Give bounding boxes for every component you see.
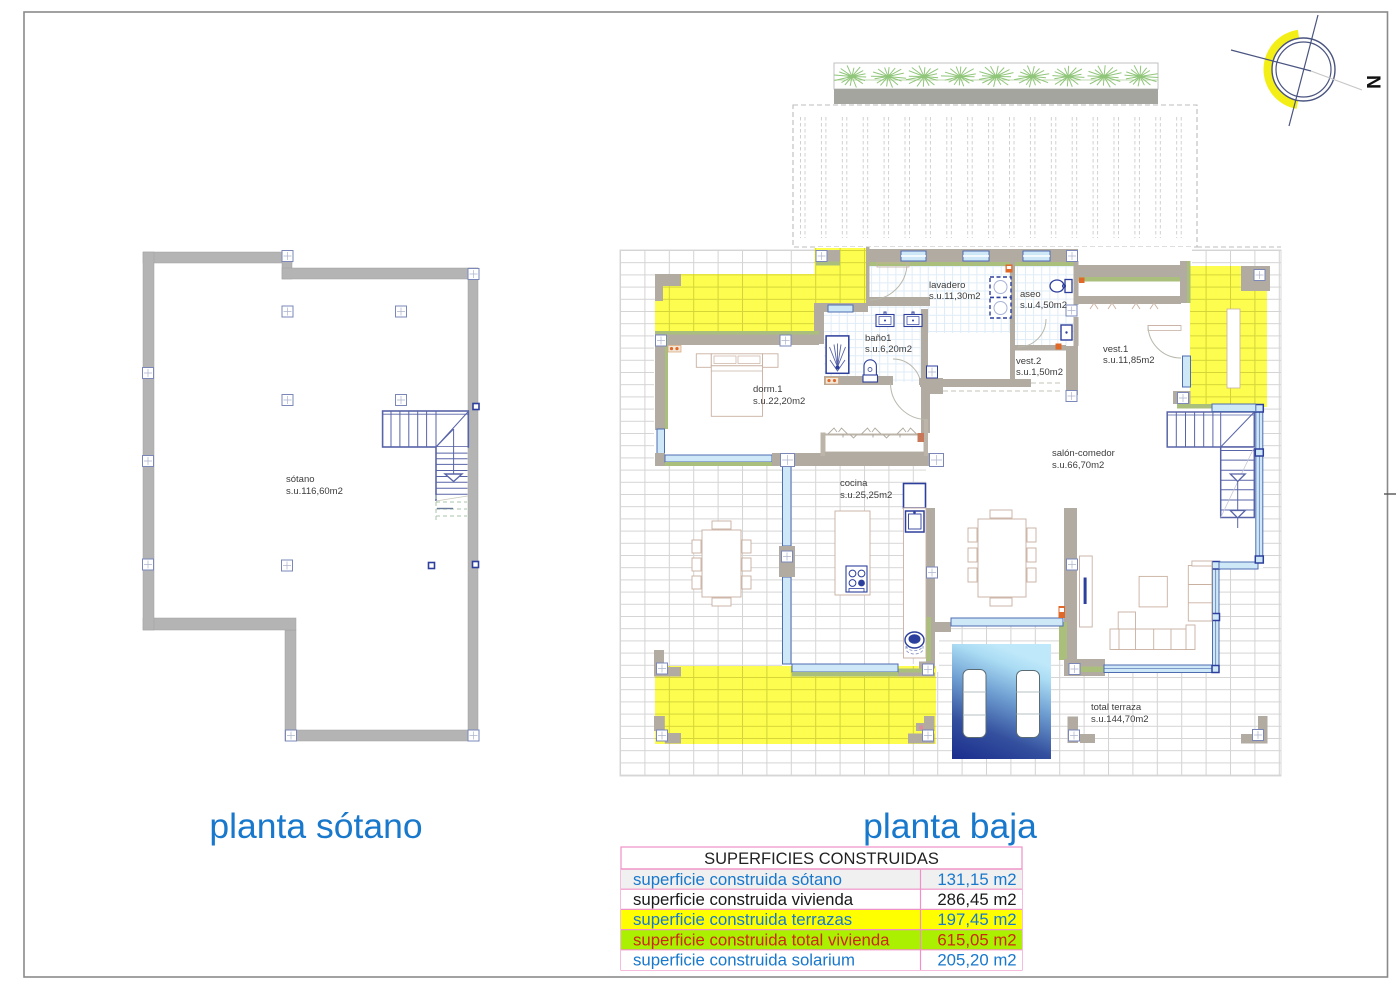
svg-text:cocina: cocina <box>840 478 868 489</box>
svg-text:s.u.11,30m2: s.u.11,30m2 <box>929 291 981 302</box>
svg-text:dorm.1: dorm.1 <box>753 384 783 395</box>
svg-text:baño1: baño1 <box>865 333 891 344</box>
svg-text:197,45 m2: 197,45 m2 <box>937 910 1016 929</box>
svg-text:131,15 m2: 131,15 m2 <box>937 870 1016 889</box>
svg-text:s.u.144,70m2: s.u.144,70m2 <box>1091 714 1149 725</box>
svg-text:205,20 m2: 205,20 m2 <box>937 951 1016 970</box>
svg-text:s.u.116,60m2: s.u.116,60m2 <box>286 486 343 497</box>
svg-text:286,45 m2: 286,45 m2 <box>937 890 1016 909</box>
svg-text:s.u.1,50m2: s.u.1,50m2 <box>1016 367 1063 378</box>
svg-text:superficie construida solarium: superficie construida solarium <box>633 951 855 970</box>
svg-text:superficie construida terrazas: superficie construida terrazas <box>633 910 852 929</box>
svg-text:N: N <box>1362 75 1383 89</box>
svg-text:615,05 m2: 615,05 m2 <box>937 930 1016 949</box>
svg-text:superficie construida sótano: superficie construida sótano <box>633 870 842 889</box>
svg-text:superficie construida total vi: superficie construida total vivienda <box>633 930 890 949</box>
svg-text:s.u.4,50m2: s.u.4,50m2 <box>1020 300 1067 311</box>
svg-text:sótano: sótano <box>286 474 315 485</box>
svg-text:vest.2: vest.2 <box>1016 356 1041 367</box>
svg-text:s.u.6,20m2: s.u.6,20m2 <box>865 344 912 355</box>
svg-text:salón-comedor: salón-comedor <box>1052 448 1115 459</box>
svg-text:superficie construida vivienda: superficie construida vivienda <box>633 890 854 909</box>
svg-text:planta sótano: planta sótano <box>209 806 422 846</box>
svg-text:s.u.66,70m2: s.u.66,70m2 <box>1052 460 1104 471</box>
svg-text:planta baja: planta baja <box>863 806 1037 846</box>
svg-text:aseo: aseo <box>1020 289 1041 300</box>
svg-text:s.u.25,25m2: s.u.25,25m2 <box>840 490 892 501</box>
svg-text:SUPERFICIES CONSTRUIDAS: SUPERFICIES CONSTRUIDAS <box>704 850 939 868</box>
svg-text:lavadero: lavadero <box>929 280 965 291</box>
svg-text:vest.1: vest.1 <box>1103 344 1128 355</box>
svg-text:s.u.11,85m2: s.u.11,85m2 <box>1103 355 1155 366</box>
svg-text:total terraza: total terraza <box>1091 702 1142 713</box>
svg-text:s.u.22,20m2: s.u.22,20m2 <box>753 396 805 407</box>
